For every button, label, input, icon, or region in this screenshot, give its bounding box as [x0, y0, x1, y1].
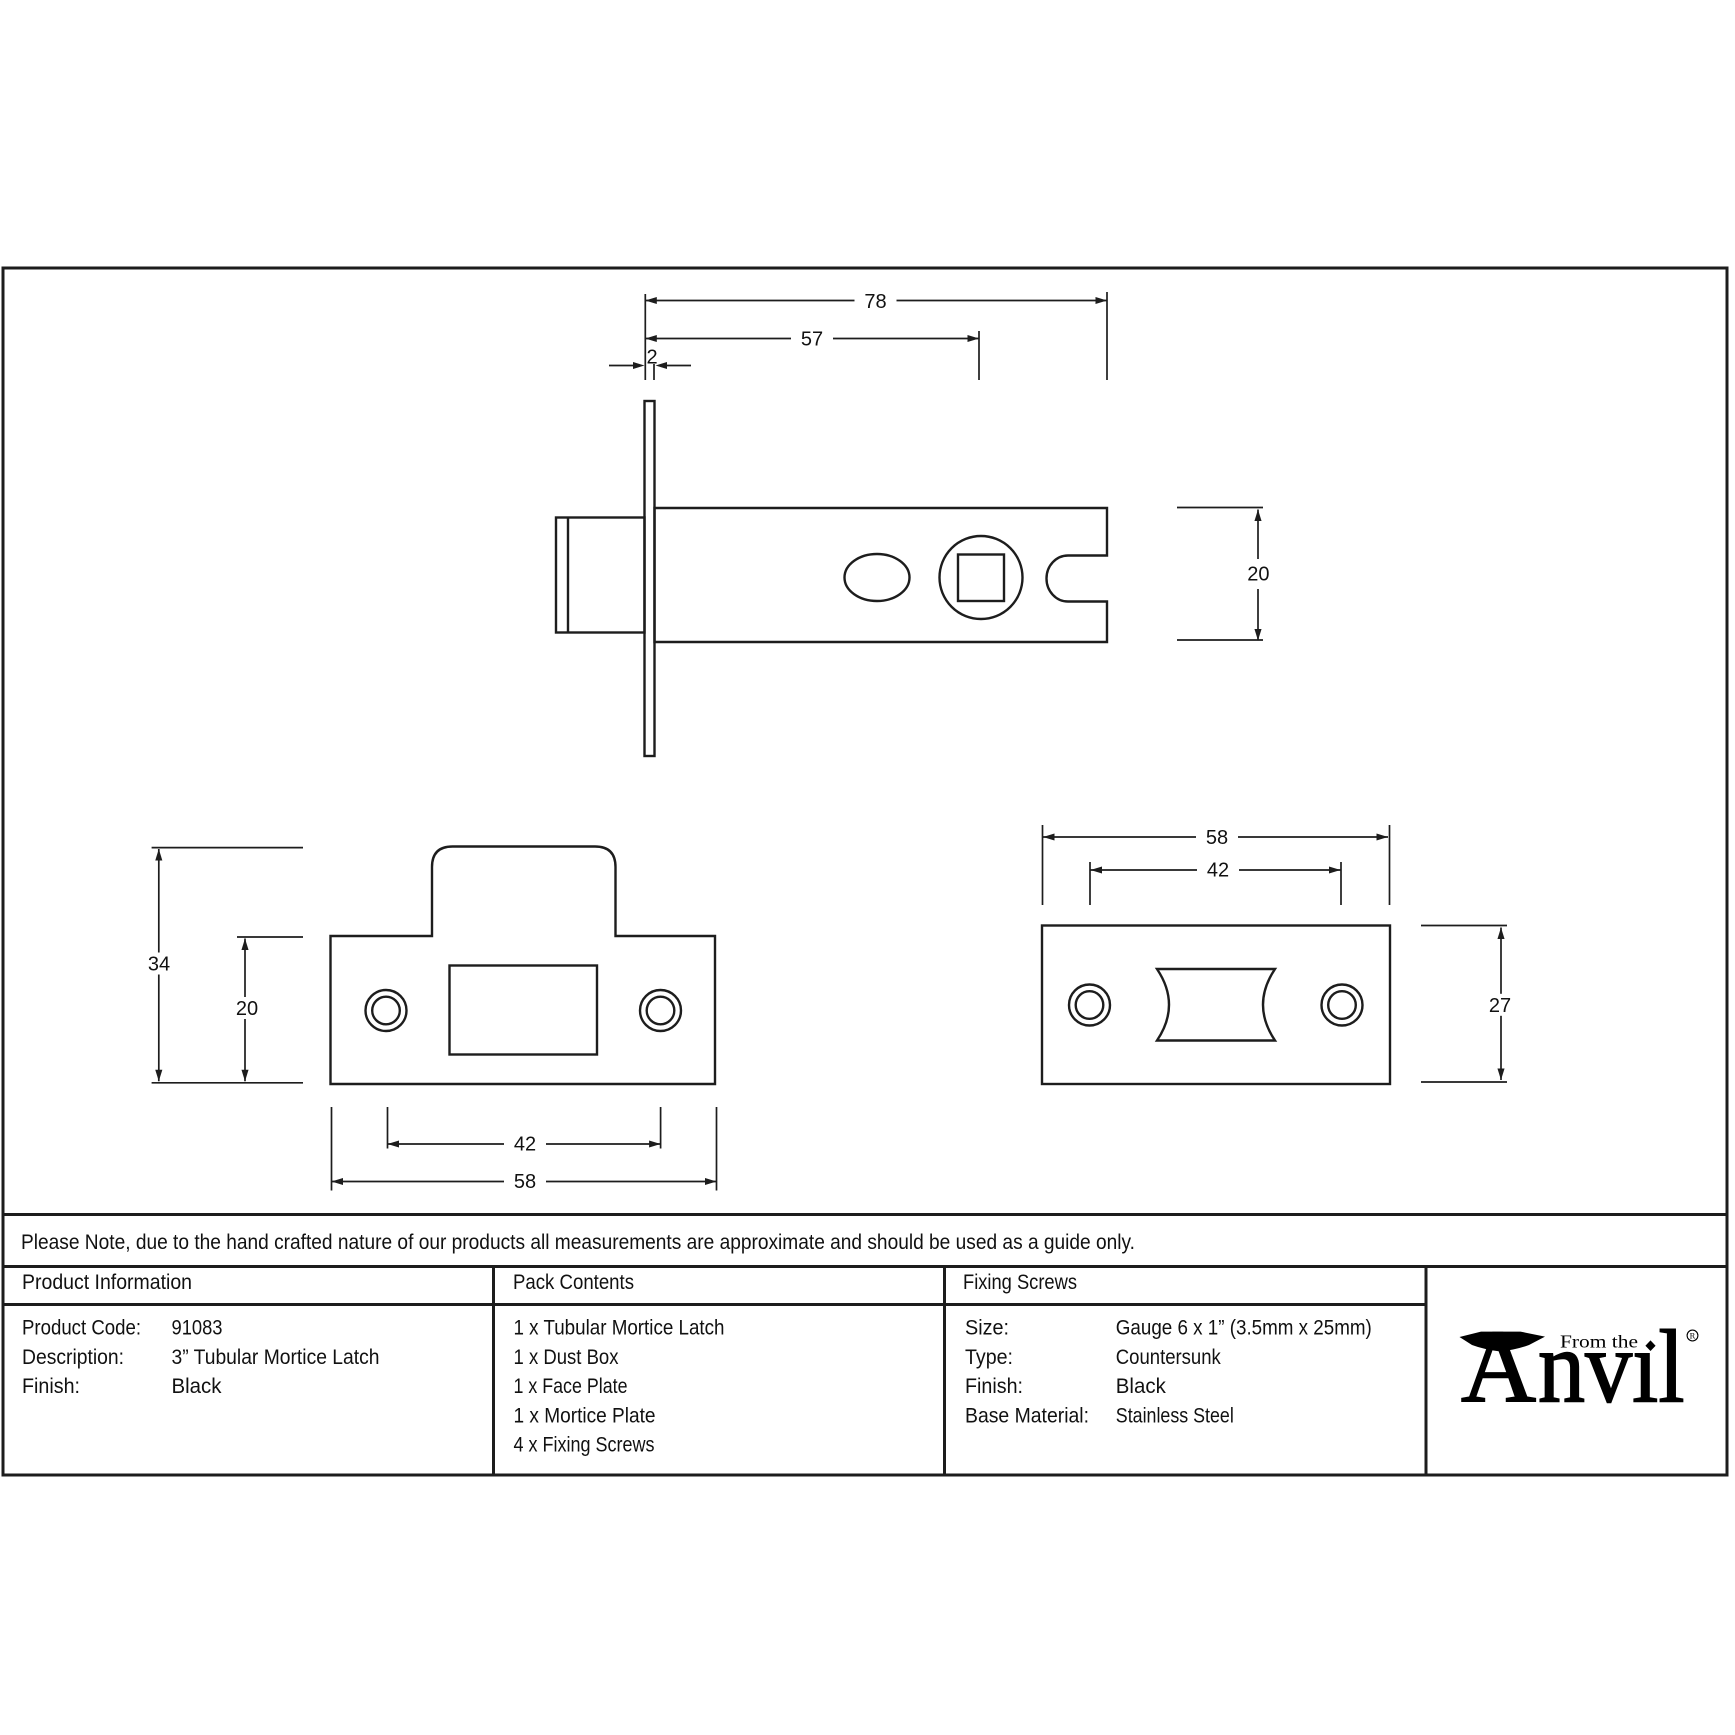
svg-text:27: 27 [1489, 995, 1511, 1017]
svg-text:Gauge 6 x 1” (3.5mm x 25mm): Gauge 6 x 1” (3.5mm x 25mm) [1116, 1317, 1372, 1340]
svg-text:78: 78 [864, 291, 886, 313]
svg-text:Please Note, due to the hand c: Please Note, due to the hand crafted nat… [21, 1231, 1135, 1254]
svg-text:2: 2 [647, 347, 658, 369]
svg-text:Finish:: Finish: [965, 1375, 1023, 1398]
svg-text:Countersunk: Countersunk [1116, 1346, 1221, 1369]
svg-text:Black: Black [172, 1375, 222, 1398]
svg-text:Base Material:: Base Material: [965, 1404, 1089, 1427]
svg-text:1 x Tubular Mortice Latch: 1 x Tubular Mortice Latch [514, 1317, 725, 1340]
svg-text:3” Tubular Mortice Latch: 3” Tubular Mortice Latch [172, 1346, 380, 1369]
svg-text:Product Code:: Product Code: [22, 1317, 141, 1340]
svg-text:nvıl: nvıl [1538, 1310, 1685, 1425]
svg-text:1 x Face Plate: 1 x Face Plate [514, 1375, 628, 1398]
svg-text:Size:: Size: [965, 1317, 1009, 1340]
svg-text:58: 58 [514, 1171, 536, 1193]
svg-text:A: A [1461, 1309, 1536, 1424]
svg-text:34: 34 [148, 954, 170, 976]
svg-text:20: 20 [236, 998, 258, 1020]
svg-text:58: 58 [1206, 827, 1228, 849]
svg-text:Type:: Type: [965, 1346, 1013, 1369]
svg-text:Fixing Screws: Fixing Screws [963, 1271, 1077, 1294]
svg-text:Product Information: Product Information [22, 1271, 192, 1294]
svg-text:91083: 91083 [172, 1317, 223, 1340]
svg-text:Description:: Description: [22, 1346, 124, 1369]
svg-text:57: 57 [801, 329, 823, 351]
svg-text:Stainless Steel: Stainless Steel [1116, 1404, 1234, 1427]
svg-text:4 x Fixing Screws: 4 x Fixing Screws [514, 1434, 655, 1457]
svg-text:Finish:: Finish: [22, 1375, 80, 1398]
svg-text:Pack Contents: Pack Contents [513, 1271, 634, 1294]
svg-text:From the: From the [1560, 1332, 1638, 1352]
svg-text:R: R [1690, 1331, 1696, 1341]
svg-text:20: 20 [1247, 564, 1269, 586]
svg-text:Black: Black [1116, 1375, 1166, 1398]
svg-text:42: 42 [514, 1134, 536, 1156]
svg-text:42: 42 [1207, 860, 1229, 882]
svg-text:1 x Mortice Plate: 1 x Mortice Plate [514, 1404, 656, 1427]
svg-text:1 x Dust Box: 1 x Dust Box [514, 1346, 619, 1369]
